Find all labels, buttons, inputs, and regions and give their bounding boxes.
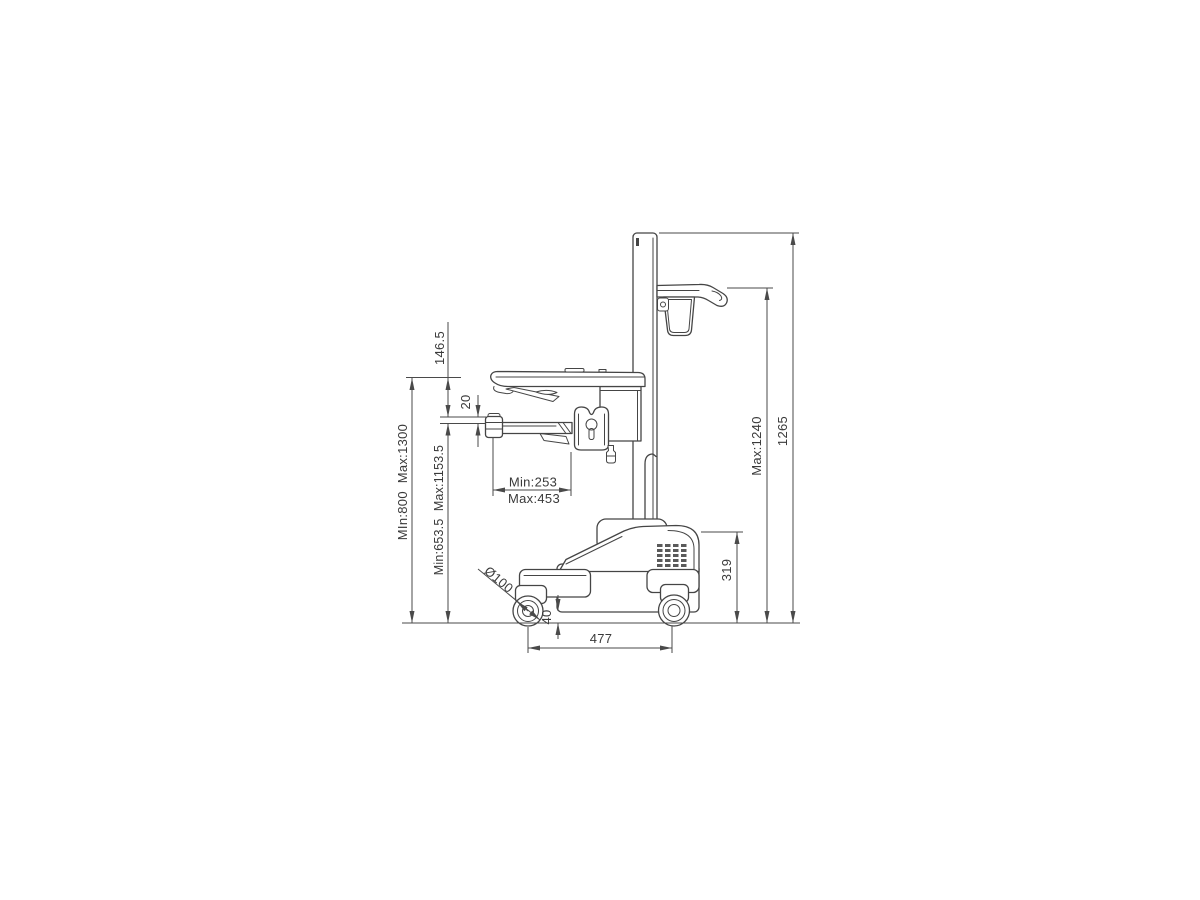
cart-outline bbox=[486, 233, 728, 626]
worktop-latch bbox=[565, 369, 584, 373]
tray-depth-max-label: Max:453 bbox=[508, 491, 560, 506]
accessory-basket bbox=[657, 284, 727, 335]
column-latch-detail bbox=[636, 238, 639, 246]
base-height-label: 319 bbox=[719, 559, 734, 582]
tray-height-range-label: Min:653.5 Max:1153.5 bbox=[432, 445, 446, 575]
cable-plug-detail bbox=[607, 446, 616, 464]
basket-clip bbox=[658, 298, 669, 311]
cart-dimension-drawing: MIn:800 Max:1300 146.5 Min:653.5 Max:115… bbox=[0, 0, 1200, 900]
overall-height-label: 1265 bbox=[775, 416, 790, 446]
rear-caster bbox=[659, 595, 690, 626]
mount-max-height-label: Max:1240 bbox=[749, 416, 764, 476]
worktop-height-range-label: MIn:800 Max:1300 bbox=[395, 424, 410, 540]
keyboard-tray bbox=[486, 414, 573, 445]
holder-bracket bbox=[575, 407, 609, 450]
tray-clamp bbox=[486, 417, 503, 438]
tray-step-label: 20 bbox=[458, 394, 473, 409]
worktop-offset-label: 146.5 bbox=[432, 331, 447, 365]
ground-clearance-label: 40 bbox=[539, 609, 554, 624]
tray-depth-min-label: Min:253 bbox=[509, 475, 557, 490]
technical-drawing-page: MIn:800 Max:1300 146.5 Min:653.5 Max:115… bbox=[0, 0, 1200, 900]
wheelbase-label: 477 bbox=[590, 631, 613, 646]
worktop bbox=[491, 372, 645, 387]
work-surface-assembly bbox=[486, 369, 646, 464]
caster-diameter-label: Ø100 bbox=[481, 563, 516, 596]
